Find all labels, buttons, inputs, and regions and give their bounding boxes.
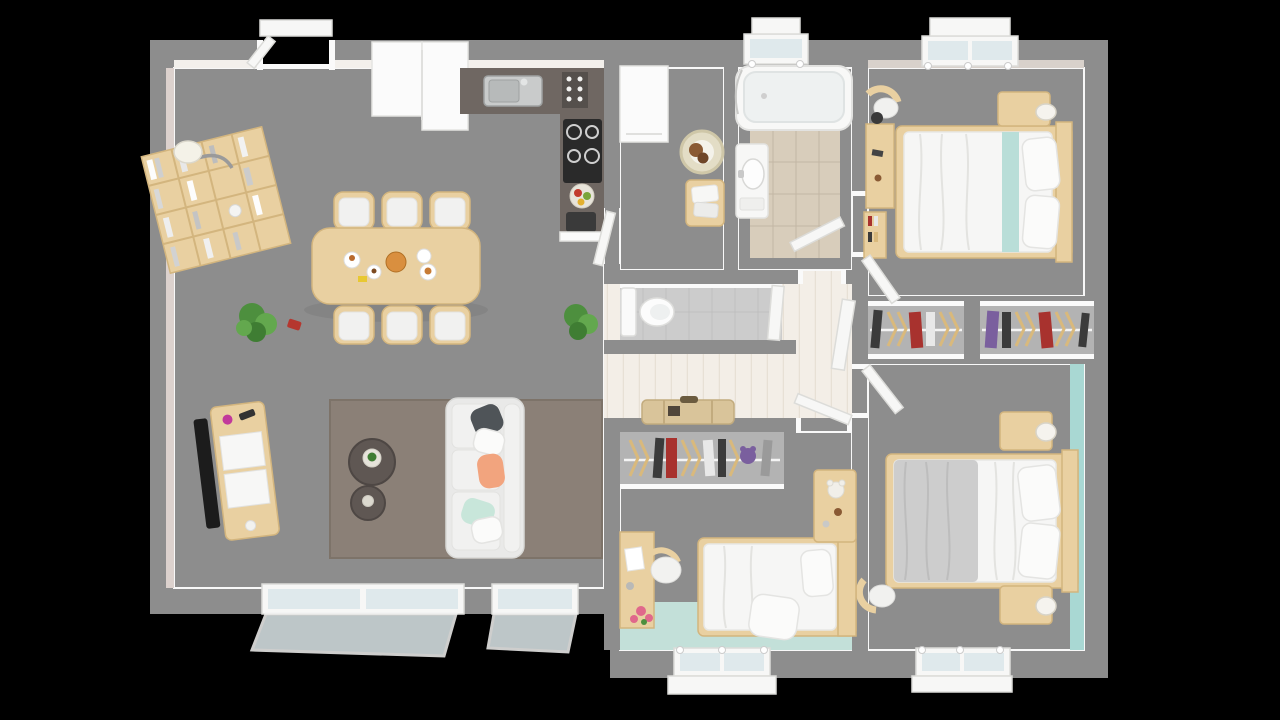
living-window-small <box>488 584 578 652</box>
wardrobe-b-trim-top <box>980 301 1094 306</box>
kids-wardrobe <box>620 432 784 489</box>
bathtub <box>736 66 852 130</box>
fruit-lemon <box>578 199 585 206</box>
window-sill <box>912 676 1012 692</box>
kids-bed <box>698 534 856 641</box>
sink-faucet <box>521 79 528 86</box>
wardrobe-a-trim-bottom <box>868 354 964 359</box>
toy <box>823 521 830 528</box>
desk-1 <box>866 124 894 208</box>
nightstand-2b <box>1000 586 1056 624</box>
wall-kitchen-utility-upper <box>604 40 620 208</box>
wardrobe-a-trim-top <box>868 301 964 306</box>
window-sill <box>930 18 1010 36</box>
bed2-pillow <box>1017 522 1060 580</box>
bed-1 <box>896 122 1072 262</box>
wall-bathroom-south-stub <box>846 270 852 284</box>
kids-pillow <box>800 549 834 597</box>
desk-item <box>626 582 634 590</box>
wall-wc-south <box>604 340 796 354</box>
floorplan-render <box>0 0 1280 720</box>
sideboard-door <box>224 469 270 508</box>
window-sill <box>668 676 776 694</box>
bed2-pillow <box>1017 464 1061 522</box>
stool-with-towels <box>686 180 724 226</box>
wall-kids-closet-side <box>784 432 796 490</box>
table-lamp <box>1036 423 1056 441</box>
sofa <box>446 398 524 558</box>
utility-appliance <box>620 66 668 142</box>
floorplan-canvas <box>0 0 1280 720</box>
kids-window <box>668 647 776 695</box>
fruit-pear <box>583 192 591 200</box>
coffee-table-small <box>351 486 385 520</box>
coffee-machine <box>566 212 596 232</box>
sink-basin <box>489 80 519 102</box>
jamb <box>798 270 803 284</box>
living-west-wall-lip <box>166 68 174 588</box>
headboard-shelf <box>814 470 856 542</box>
dining-chairs-bottom <box>334 306 470 344</box>
wc-baseboard <box>620 284 782 288</box>
coffee-table-large <box>349 439 395 485</box>
bed1-pillow <box>1021 136 1060 191</box>
suitcase <box>642 396 734 424</box>
wall-kids-west <box>604 432 620 650</box>
bedroom1-window <box>922 18 1018 70</box>
wall-wc-north <box>604 270 798 284</box>
living-window-large <box>252 584 464 656</box>
nightstand-1 <box>998 92 1056 126</box>
jamb <box>841 270 846 284</box>
kids-headboard <box>838 534 856 636</box>
glass-reflection <box>252 614 456 656</box>
jacket <box>871 112 883 124</box>
suitcase-sticker <box>668 406 680 416</box>
table-lamp <box>1036 597 1056 615</box>
towel <box>740 198 764 210</box>
headboard <box>1056 122 1072 262</box>
jamb <box>796 418 801 432</box>
nightstand-2a <box>1000 412 1056 450</box>
window-sill <box>752 18 800 34</box>
wardrobe-row <box>852 296 1108 364</box>
paper <box>625 547 645 571</box>
wardrobe-b-trim-bottom <box>980 354 1094 359</box>
butter <box>358 276 367 282</box>
sofa-backrest <box>504 404 520 552</box>
desk-item <box>875 175 882 182</box>
tall-cabinet <box>372 42 422 116</box>
cabinet-front <box>560 232 604 241</box>
blanket-drape <box>747 593 800 641</box>
jamb <box>852 413 868 418</box>
bedroom2-window <box>912 647 1012 693</box>
bed-teal-runner <box>1002 132 1019 252</box>
pet-basket <box>681 131 723 173</box>
glass-reflection <box>488 614 576 652</box>
bathroom-window <box>744 18 808 68</box>
headboard <box>1062 450 1078 592</box>
entry-door <box>247 20 335 70</box>
wc <box>620 284 784 340</box>
spice-rack <box>562 72 588 108</box>
fruit-apple <box>574 189 582 197</box>
low-bookshelf <box>864 212 886 258</box>
basin-faucet <box>738 170 744 178</box>
bed-2 <box>886 450 1078 592</box>
dining-chairs-top <box>334 192 470 230</box>
tub-drain <box>761 93 767 99</box>
toy <box>834 508 842 516</box>
sideboard-door <box>220 432 266 471</box>
washbasin-vanity <box>736 144 768 218</box>
entry-landing <box>260 20 332 36</box>
table-lamp <box>1036 104 1056 120</box>
bed1-pillow <box>1022 195 1060 250</box>
